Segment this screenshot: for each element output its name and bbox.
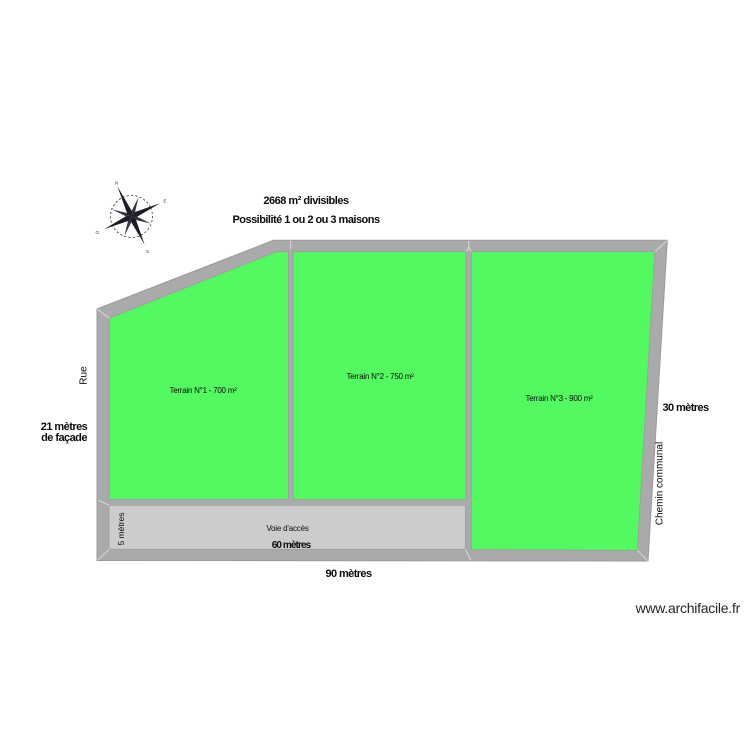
svg-text:O: O — [96, 230, 100, 235]
svg-text:N: N — [115, 181, 118, 186]
svg-text:S: S — [146, 249, 149, 254]
